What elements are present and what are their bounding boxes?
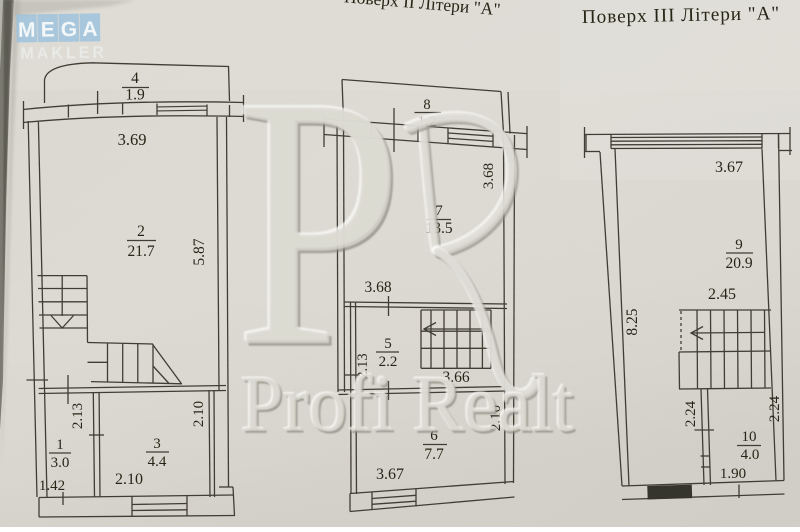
svg-text:MAKLER: MAKLER xyxy=(20,44,107,63)
svg-text:9: 9 xyxy=(735,237,743,253)
svg-text:3.68: 3.68 xyxy=(481,163,497,189)
svg-text:4.0: 4.0 xyxy=(741,447,760,463)
svg-text:1.42: 1.42 xyxy=(39,478,65,494)
svg-text:2.10: 2.10 xyxy=(191,401,207,427)
svg-text:21.7: 21.7 xyxy=(127,243,154,260)
svg-text:20.9: 20.9 xyxy=(725,255,752,272)
svg-text:8.25: 8.25 xyxy=(624,308,641,335)
svg-text:E: E xyxy=(41,18,55,41)
svg-text:10: 10 xyxy=(742,429,757,445)
svg-text:2.10: 2.10 xyxy=(115,471,143,488)
svg-text:2.24: 2.24 xyxy=(767,395,783,422)
svg-text:4: 4 xyxy=(131,70,139,87)
svg-text:M: M xyxy=(18,19,36,42)
svg-text:4.4: 4.4 xyxy=(148,454,167,470)
svg-text:2: 2 xyxy=(137,223,145,240)
svg-text:3.67: 3.67 xyxy=(715,159,743,176)
svg-text:2.24: 2.24 xyxy=(683,400,699,427)
svg-text:8: 8 xyxy=(423,97,430,113)
svg-text:1: 1 xyxy=(56,437,64,453)
svg-text:1.9: 1.9 xyxy=(125,87,145,104)
svg-text:Поверх III Літери "А": Поверх III Літери "А" xyxy=(582,3,781,28)
svg-text:2.13: 2.13 xyxy=(70,403,86,429)
svg-text:3.67: 3.67 xyxy=(376,466,404,483)
svg-text:3: 3 xyxy=(153,436,161,452)
svg-text:1.90: 1.90 xyxy=(720,466,746,482)
svg-text:3.0: 3.0 xyxy=(51,455,70,471)
svg-text:3.69: 3.69 xyxy=(118,130,147,149)
svg-text:2.45: 2.45 xyxy=(708,286,736,303)
svg-text:G: G xyxy=(61,18,78,41)
svg-text:Profi Realt: Profi Realt xyxy=(241,359,574,448)
svg-text:5.87: 5.87 xyxy=(191,238,208,265)
svg-text:A: A xyxy=(82,18,97,41)
